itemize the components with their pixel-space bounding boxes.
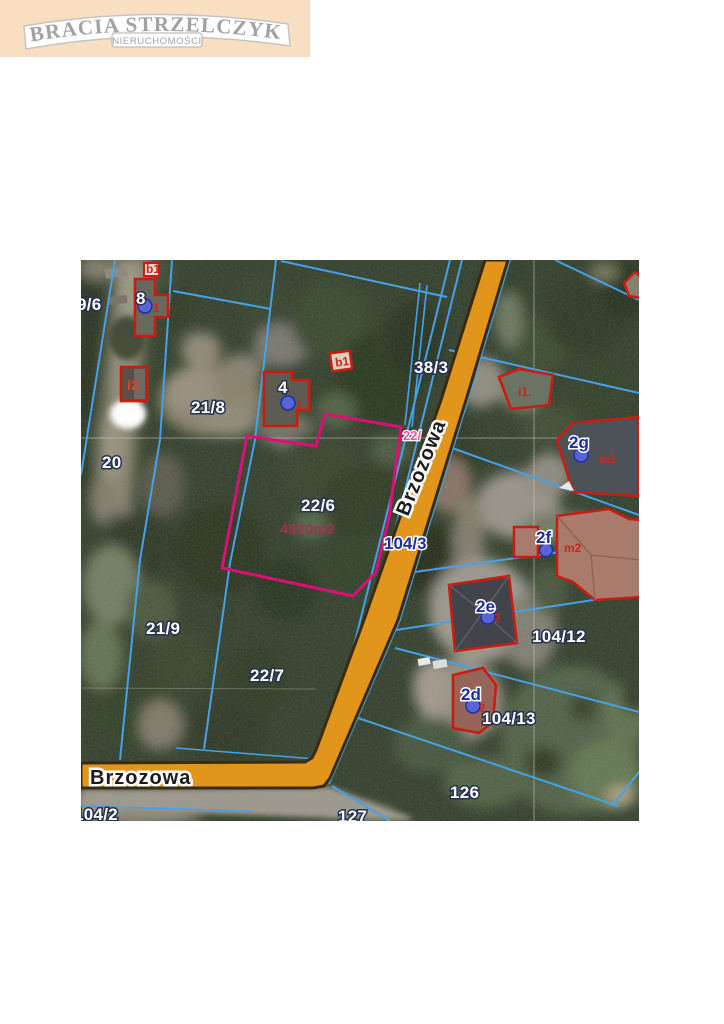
svg-text:22/7: 22/7: [250, 666, 284, 685]
svg-text:21/9: 21/9: [146, 619, 180, 638]
svg-text:4: 4: [278, 378, 288, 397]
svg-text:126: 126: [450, 783, 479, 802]
svg-text:1: 1: [153, 301, 160, 315]
svg-text:i1.: i1.: [518, 385, 531, 399]
svg-text:2: 2: [494, 611, 501, 625]
svg-text:22/: 22/: [403, 428, 421, 443]
svg-text:104/13: 104/13: [482, 709, 536, 728]
svg-text:NIERUCHOMOŚCI: NIERUCHOMOŚCI: [112, 35, 202, 47]
svg-text:2e: 2e: [476, 597, 495, 616]
svg-text:4920m2: 4920m2: [280, 521, 335, 538]
svg-text:20: 20: [102, 453, 122, 472]
svg-text:104/3: 104/3: [384, 534, 427, 553]
svg-text:104/2: 104/2: [81, 805, 118, 821]
svg-text:i2: i2: [127, 377, 139, 393]
svg-text:2g: 2g: [569, 433, 589, 452]
svg-text:38/3: 38/3: [414, 358, 448, 377]
svg-text:1: 1: [296, 398, 303, 412]
svg-text:127: 127: [338, 807, 367, 821]
svg-text:22/6: 22/6: [301, 496, 335, 515]
svg-text:2d: 2d: [461, 685, 481, 704]
svg-text:Brzozowa: Brzozowa: [90, 767, 191, 789]
svg-text:21/8: 21/8: [191, 398, 225, 417]
svg-text:m2: m2: [564, 541, 582, 555]
svg-text:104/12: 104/12: [532, 627, 586, 646]
svg-text:b1: b1: [146, 262, 160, 276]
svg-text:9/6: 9/6: [81, 295, 102, 314]
svg-text:8: 8: [136, 289, 146, 308]
svg-text:m1: m1: [599, 452, 617, 466]
svg-text:b1: b1: [334, 354, 350, 370]
svg-text:2f: 2f: [536, 528, 551, 547]
